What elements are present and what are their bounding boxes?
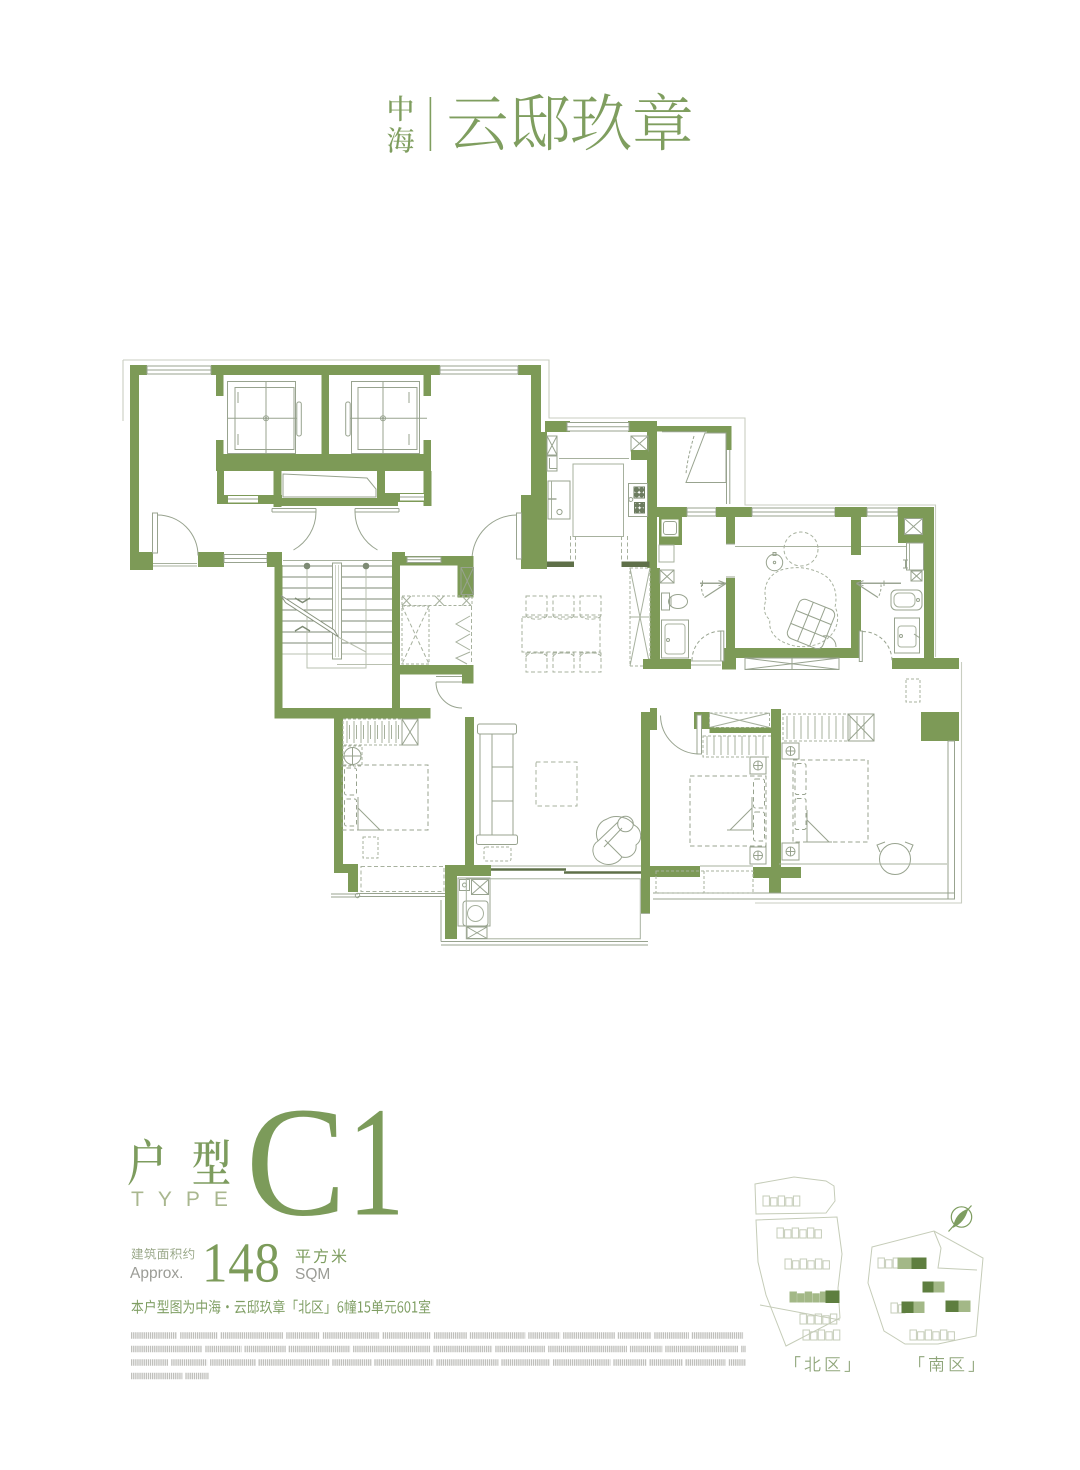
svg-text:Approx.: Approx.	[130, 1265, 183, 1282]
svg-text:SQM: SQM	[295, 1266, 330, 1283]
svg-text:TYPE: TYPE	[131, 1188, 242, 1211]
